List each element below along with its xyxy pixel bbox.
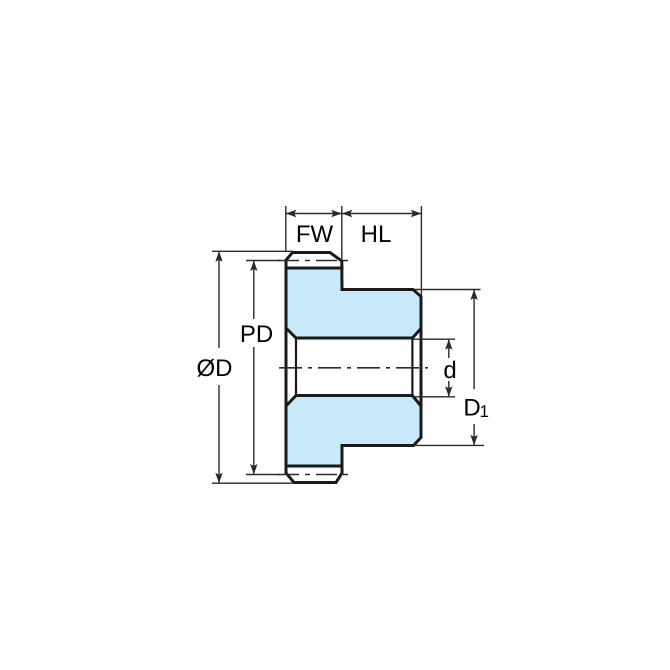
svg-text:PD: PD [240, 321, 273, 348]
svg-text:1: 1 [480, 402, 489, 421]
svg-text:ØD: ØD [197, 355, 233, 382]
svg-text:HL: HL [361, 221, 392, 248]
svg-text:d: d [443, 357, 456, 384]
svg-text:FW: FW [296, 221, 334, 248]
svg-text:D: D [463, 394, 480, 421]
